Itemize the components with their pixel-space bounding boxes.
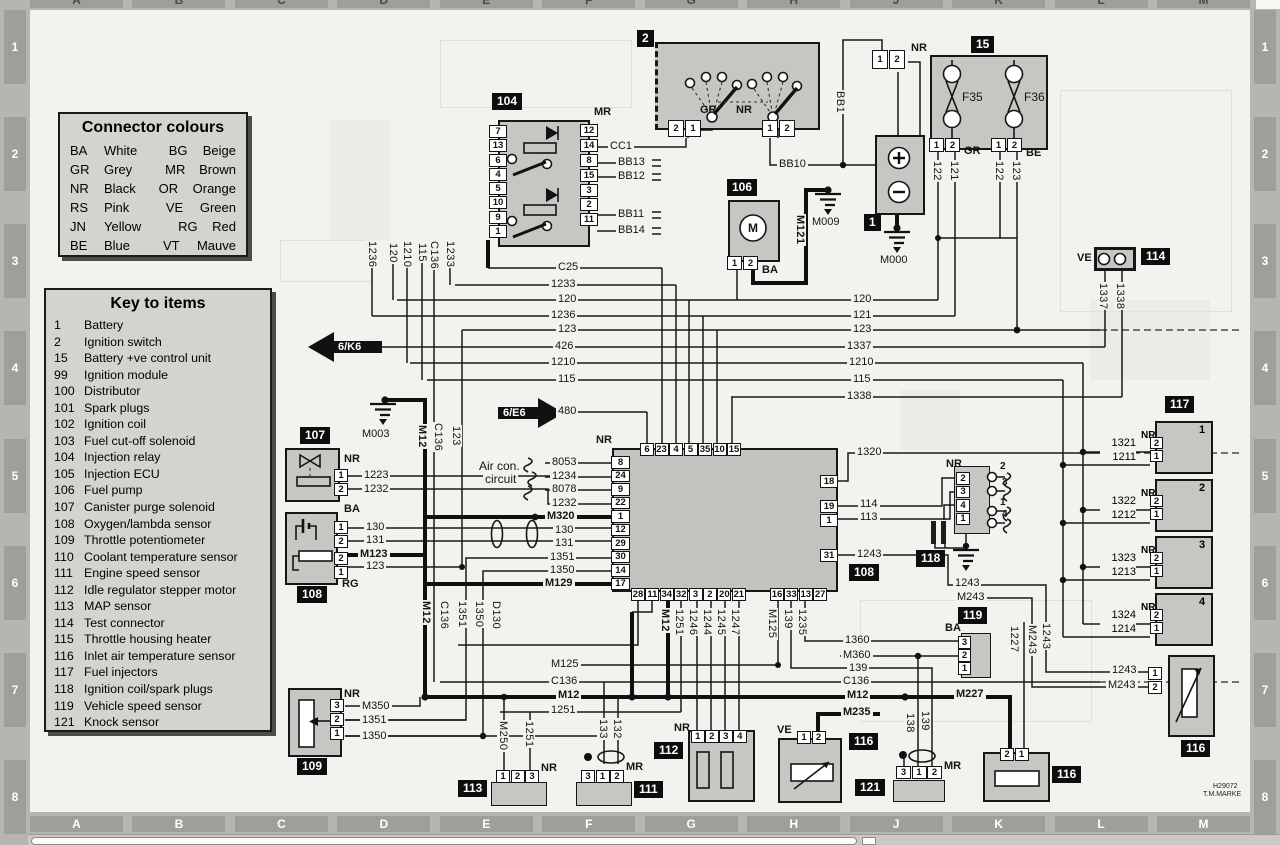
throttle-pins: 321 <box>330 699 344 740</box>
key-row: 114 Test connector <box>46 615 270 632</box>
injector-number: 1 <box>1199 424 1205 436</box>
item-label: Fuel cut-off solenoid <box>84 433 195 450</box>
key-row: 103 Fuel cut-off solenoid <box>46 433 270 450</box>
colour-name: Blue <box>104 236 163 255</box>
component-tag-109: 109 <box>297 758 327 775</box>
wire-label: 1350 <box>548 564 576 577</box>
wire-label: 1243 <box>855 548 883 561</box>
pin: 8 <box>611 456 630 469</box>
wire-label: 1351 <box>548 551 576 564</box>
air-temp-h-body <box>778 738 842 803</box>
horizontal-scrollbar[interactable] <box>28 834 1280 845</box>
wire-label: 1322 <box>1100 495 1136 507</box>
colour-code: OR <box>159 179 193 198</box>
item-number: 110 <box>54 549 84 566</box>
pin: 10 <box>489 196 507 209</box>
wire-label: 480 <box>556 405 578 418</box>
wire-label: 1323 <box>1100 552 1136 564</box>
pin: 13 <box>489 139 507 152</box>
pin: 2 <box>927 766 942 779</box>
pin: 5 <box>489 182 507 195</box>
wire-label: 1232 <box>362 483 390 496</box>
ecu-top-pins: 62345351015 <box>640 443 741 456</box>
wire-label: M12 <box>659 608 671 633</box>
pin: 33 <box>784 588 798 601</box>
component-tag-ecu: 108 <box>849 564 879 581</box>
item-number: 100 <box>54 383 84 400</box>
pin: 1 <box>334 566 348 579</box>
key-row: 119 Vehicle speed sensor <box>46 698 270 715</box>
connector-colour-label: VE <box>777 724 792 736</box>
pin: 2 <box>330 713 344 726</box>
pin: 2 <box>703 588 717 601</box>
component-tag-117: 117 <box>1165 396 1194 413</box>
colour-code: BA <box>70 141 104 160</box>
pin: 2 <box>705 730 719 743</box>
grid-tab: L <box>1055 816 1148 832</box>
wire-label: 139 <box>919 710 931 732</box>
pin: 22 <box>611 497 630 510</box>
item-number: 118 <box>54 681 84 698</box>
pin: 12 <box>611 524 630 537</box>
injector-unit: NR 4 1324 1214 2 1 <box>1095 593 1217 651</box>
wire-label: M250 <box>497 720 509 752</box>
pin: 1 <box>334 469 348 482</box>
component-tag-2: 2 <box>637 30 654 47</box>
pin: 2 <box>956 472 970 485</box>
pin: 3 <box>580 184 598 197</box>
key-row: 105 Injection ECU <box>46 466 270 483</box>
wire-label: 131 <box>553 537 575 550</box>
item-number: 107 <box>54 499 84 516</box>
item-label: Throttle housing heater <box>84 631 211 648</box>
pin: 1 <box>727 256 742 270</box>
lambda-pins-a: 12 <box>334 521 348 548</box>
wire-label: C136 <box>438 600 450 630</box>
injector-number: 2 <box>1199 482 1205 494</box>
colour-name: Pink <box>104 198 166 217</box>
legend-row: RS Pink VE Green <box>60 198 246 217</box>
colour-name: Beige <box>203 141 236 160</box>
pin: 1 <box>596 770 610 783</box>
key-row: 111 Engine speed sensor <box>46 565 270 582</box>
pin: 1 <box>330 727 344 740</box>
rpm-111-pins: 312 <box>581 770 624 783</box>
map-sensor-body <box>491 782 547 806</box>
item-label: Inlet air temperature sensor <box>84 648 236 665</box>
injector-unit: NR 1 1321 1211 2 1 <box>1095 421 1217 479</box>
item-label: Battery +ve control unit <box>84 350 211 367</box>
bleed-artifact <box>330 120 390 240</box>
colour-code: BE <box>70 236 104 255</box>
pin: 9 <box>489 211 507 224</box>
drawing-credit: T.M.MARKE <box>1203 791 1241 798</box>
wire-label: M12 <box>845 689 870 702</box>
pin: 1 <box>872 50 888 69</box>
wire-label: 1324 <box>1100 609 1136 621</box>
colour-name: Green <box>200 198 236 217</box>
wire-label: 139 <box>782 608 794 630</box>
connector-colour-label: MR <box>944 760 961 772</box>
wire-label: C136 <box>432 422 444 452</box>
connector-colour-label: BA <box>344 503 360 515</box>
pin: 3 <box>330 699 344 712</box>
grid-tab: 3 <box>4 224 26 298</box>
battery-body <box>875 135 925 215</box>
pin: 5 <box>684 443 698 456</box>
grid-tab: 1 <box>4 10 26 84</box>
grid-tab: K <box>952 816 1045 832</box>
pin: 2 <box>511 770 525 783</box>
connector-colour-label: NR <box>946 458 962 470</box>
wire-label: M125 <box>549 658 581 671</box>
pin: 1 <box>1150 450 1163 462</box>
wire-label: M129 <box>543 577 575 590</box>
scrollbar-button[interactable] <box>862 837 876 845</box>
grid-tab: C <box>235 816 328 832</box>
grid-tab: M <box>1157 816 1250 832</box>
pin: 3 <box>956 486 970 499</box>
wire-label: BB1 <box>834 90 846 114</box>
injector-number: 4 <box>1199 596 1205 608</box>
grid-tab: M <box>1157 0 1250 8</box>
pin: 21 <box>732 588 746 601</box>
wire-label: M12 <box>420 600 432 625</box>
wire-label: M243 <box>1106 679 1138 692</box>
pin: 2 <box>889 50 905 69</box>
wire-label: M235 <box>841 706 873 719</box>
item-number: 2 <box>54 334 84 351</box>
wire-label: 1243 <box>953 577 981 590</box>
item-label: Ignition coil <box>84 416 146 433</box>
item-number: 111 <box>54 565 84 582</box>
wire-label: 1236 <box>366 240 378 268</box>
ground-label: M003 <box>360 428 392 441</box>
grid-tab: L <box>1055 0 1148 8</box>
item-number: 105 <box>54 466 84 483</box>
grid-row-tabs-right: 12345678 <box>1254 10 1276 834</box>
scrollbar-thumb[interactable] <box>31 837 857 845</box>
injector-pins: 2 1 <box>1150 437 1163 462</box>
key-row: 107 Canister purge solenoid <box>46 499 270 516</box>
item-number: 116 <box>54 648 84 665</box>
pin: 17 <box>611 578 630 591</box>
pin: 1 <box>912 766 927 779</box>
wire-label: 123 <box>1010 160 1022 182</box>
grid-tab: 3 <box>1254 224 1276 298</box>
wire-label: 1350 <box>473 600 485 628</box>
pin: 1 <box>1150 565 1163 577</box>
wire-label: 139 <box>847 662 869 675</box>
pin: 6 <box>489 154 507 167</box>
pin: 2 <box>610 770 624 783</box>
grid-tab: B <box>132 816 225 832</box>
wire-label: BB11 <box>616 208 646 221</box>
bleed-artifact <box>440 40 632 108</box>
item-number: 15 <box>54 350 84 367</box>
ecu-body <box>612 448 838 592</box>
pin: 4 <box>733 730 747 743</box>
wire-label: 115 <box>416 242 428 263</box>
injector-pins: 2 1 <box>1150 552 1163 577</box>
wire-label: 115 <box>556 373 578 386</box>
wire-label: 131 <box>364 534 386 547</box>
wire-label: 1227 <box>1008 625 1020 653</box>
wire-label: 130 <box>553 524 575 537</box>
wire-label: 1236 <box>549 309 577 322</box>
colour-name: Grey <box>104 160 165 179</box>
item-number: 108 <box>54 516 84 533</box>
colour-code: NR <box>70 179 104 198</box>
wire-label: 1251 <box>549 704 577 717</box>
pin: 2 <box>945 138 960 152</box>
pin: 28 <box>631 588 645 601</box>
wire-label: 8053 <box>550 456 578 469</box>
key-row: 99 Ignition module <box>46 367 270 384</box>
wire-label: M360 <box>841 649 873 662</box>
key-row: 113 MAP sensor <box>46 598 270 615</box>
item-number: 117 <box>54 664 84 681</box>
item-label: Test connector <box>84 615 165 632</box>
pin: 3 <box>958 636 971 649</box>
pin: 3 <box>581 770 595 783</box>
motor-letter: M <box>748 221 758 235</box>
coil-118-pins: 2341 <box>956 472 970 525</box>
colour-code: RS <box>70 198 104 217</box>
page-ref-arrow-label: 6/E6 <box>503 407 526 419</box>
ignition-conn-right: 12 <box>762 120 795 137</box>
wire-label: M12 <box>556 689 581 702</box>
wire-label: 1235 <box>796 608 808 636</box>
pin: 2 <box>334 483 348 496</box>
wire-label: CC1 <box>608 140 634 153</box>
pin: 2 <box>580 198 598 211</box>
item-label: Coolant temperature sensor <box>84 549 238 566</box>
legend-row: BA White BG Beige <box>60 141 246 160</box>
item-number: 1 <box>54 317 84 334</box>
item-label: Ignition coil/spark plugs <box>84 681 213 698</box>
pin: 1 <box>685 120 701 137</box>
pin: 3 <box>719 730 733 743</box>
grid-tab: C <box>235 0 328 8</box>
knock-pins: 312 <box>896 766 942 779</box>
grid-tab: D <box>337 0 430 8</box>
wire-label: 1351 <box>360 714 388 727</box>
key-row: 109 Throttle potentiometer <box>46 532 270 549</box>
purge-pins: 12 <box>334 469 348 496</box>
grid-col-tabs-bottom: ABCDEFGHJKLM <box>30 816 1250 832</box>
purge-solenoid-body <box>285 448 340 502</box>
pin: 2 <box>743 256 758 270</box>
wire-label: 113 <box>858 511 880 524</box>
pin: 1 <box>489 225 507 238</box>
pin: 27 <box>813 588 827 601</box>
relay-104-body <box>498 120 590 247</box>
grid-tab: A <box>30 0 123 8</box>
item-label: Spark plugs <box>84 400 149 417</box>
wire-label: 130 <box>364 521 386 534</box>
wire-label: 1251 <box>673 608 685 636</box>
component-tag-116: 116 <box>849 733 878 750</box>
connector-colour-label: VE <box>1077 252 1092 264</box>
colour-name: White <box>104 141 169 160</box>
grid-tab: B <box>132 0 225 8</box>
item-number: 113 <box>54 598 84 615</box>
pin: 2 <box>334 552 348 565</box>
unit15-conn-be: 12 <box>991 138 1022 152</box>
stepper-pins: 1234 <box>691 730 747 743</box>
connector-colour-label: GR <box>964 145 981 157</box>
corner-notch <box>1256 0 1280 9</box>
item-label: Canister purge solenoid <box>84 499 215 516</box>
wire-label: M121 <box>794 214 806 246</box>
fuse-label: F36 <box>1024 90 1045 104</box>
grid-tab: 8 <box>4 760 26 834</box>
key-title: Key to items <box>46 295 270 313</box>
pin: 30 <box>611 551 630 564</box>
connector-colour-label: NR <box>541 762 557 774</box>
wire-label: BB10 <box>777 158 808 171</box>
wire-label: 1232 <box>550 497 578 510</box>
speed-119-pins: 321 <box>958 636 971 675</box>
component-tag-104: 104 <box>492 93 522 110</box>
connector-colour-label: BE <box>1026 147 1041 159</box>
grid-tab: H <box>747 0 840 8</box>
wire-label: 1233 <box>444 240 456 268</box>
pin: 1 <box>496 770 510 783</box>
pin: 1 <box>334 521 348 534</box>
pin: 34 <box>660 588 674 601</box>
key-row: 2 Ignition switch <box>46 334 270 351</box>
pin: 23 <box>655 443 669 456</box>
plug-number: 2 <box>1000 461 1006 472</box>
grid-tab: D <box>337 816 430 832</box>
plug-number: 3 <box>1002 477 1008 488</box>
grid-tab: 1 <box>1254 10 1276 84</box>
colour-code: JN <box>70 217 104 236</box>
wire-label: 1243 <box>1110 664 1138 677</box>
grid-tab: 4 <box>4 331 26 405</box>
knock-sensor-body <box>893 780 945 802</box>
ignition-conn-left: 21 <box>668 120 701 137</box>
wire-label: 1213 <box>1100 566 1136 578</box>
wire-label: 1244 <box>701 608 713 636</box>
key-row: 1 Battery <box>46 317 270 334</box>
wire-label: 121 <box>851 309 873 322</box>
item-label: Vehicle speed sensor <box>84 698 202 715</box>
connector-colour-label: RG <box>342 578 359 590</box>
grid-tab: 6 <box>1254 546 1276 620</box>
wire-label: 1245 <box>715 608 727 636</box>
component-tag-106: 106 <box>727 179 757 196</box>
pin: 1 <box>991 138 1006 152</box>
grid-tab: 4 <box>1254 331 1276 405</box>
pin: 13 <box>799 588 813 601</box>
component-tag-1: 1 <box>864 214 881 231</box>
item-number: 102 <box>54 416 84 433</box>
item-label: Fuel pump <box>84 482 143 499</box>
component-tag-116: 116 <box>1052 766 1081 783</box>
grid-tab: 5 <box>1254 439 1276 513</box>
grid-tab: 6 <box>4 546 26 620</box>
battery-feed-conn: 12 <box>872 50 905 69</box>
pin: 4 <box>669 443 683 456</box>
wire-label: 115 <box>851 373 873 386</box>
pin: 12 <box>580 124 598 137</box>
relay-104-left-pins: 7136451091 <box>489 125 507 238</box>
injector-number: 3 <box>1199 539 1205 551</box>
key-row: 15 Battery +ve control unit <box>46 350 270 367</box>
wire-label: 1243 <box>1040 622 1052 650</box>
wire-label: 1320 <box>855 446 883 459</box>
item-label: Engine speed sensor <box>84 565 200 582</box>
item-number: 114 <box>54 615 84 632</box>
pin: 16 <box>770 588 784 601</box>
ecu-bottom-pins-b: 16331327 <box>770 588 827 601</box>
colour-name: Orange <box>193 179 236 198</box>
component-tag-114: 114 <box>1141 248 1170 265</box>
pin: 1 <box>956 513 970 526</box>
grid-row-tabs-left: 12345678 <box>4 10 26 834</box>
grid-tab: 7 <box>4 653 26 727</box>
pin: 8 <box>580 154 598 167</box>
pin: 35 <box>698 443 712 456</box>
item-label: Injection relay <box>84 449 160 466</box>
component-tag-118: 118 <box>916 550 945 567</box>
pin: 4 <box>956 499 970 512</box>
grid-tab: H <box>747 816 840 832</box>
key-row: 104 Injection relay <box>46 449 270 466</box>
pin: 1 <box>691 730 705 743</box>
pin: 2 <box>1148 681 1162 694</box>
item-number: 101 <box>54 400 84 417</box>
injector-pins: 2 1 <box>1150 609 1163 634</box>
wire-label: 1233 <box>549 278 577 291</box>
grid-tab: G <box>645 816 738 832</box>
key-row: 117 Fuel injectors <box>46 664 270 681</box>
wire-label: 1212 <box>1100 509 1136 521</box>
grid-tab: F <box>542 0 635 8</box>
pin: 10 <box>713 443 727 456</box>
wire-label: BB13 <box>616 156 647 169</box>
colour-code: VE <box>166 198 200 217</box>
pin: 14 <box>580 139 598 152</box>
connector-colour-label: NR <box>344 453 360 465</box>
item-number: 103 <box>54 433 84 450</box>
pin: 2 <box>1150 552 1163 564</box>
legend-row: BE Blue VT Mauve <box>60 236 246 255</box>
component-tag-119: 119 <box>958 607 987 624</box>
item-label: Knock sensor <box>84 714 159 731</box>
colour-code: MR <box>165 160 199 179</box>
drawing-reference: H29072 <box>1213 783 1238 790</box>
connector-colour-label: BA <box>762 264 778 276</box>
component-tag-107: 107 <box>300 427 330 444</box>
legend-row: GR Grey MR Brown <box>60 160 246 179</box>
legend-title: Connector colours <box>60 119 246 137</box>
pin: 1 <box>762 120 778 137</box>
grid-tab: 5 <box>4 439 26 513</box>
colour-code: GR <box>70 160 104 179</box>
grid-tab: A <box>30 816 123 832</box>
connector-colour-label: NR <box>674 722 690 734</box>
pin: 2 <box>1150 609 1163 621</box>
pin: 29 <box>611 537 630 550</box>
component-tag-113: 113 <box>458 780 487 797</box>
key-row: 112 Idle regulator stepper motor <box>46 582 270 599</box>
wire-label: BB12 <box>616 170 647 183</box>
wire-label: 1337 <box>845 340 873 353</box>
